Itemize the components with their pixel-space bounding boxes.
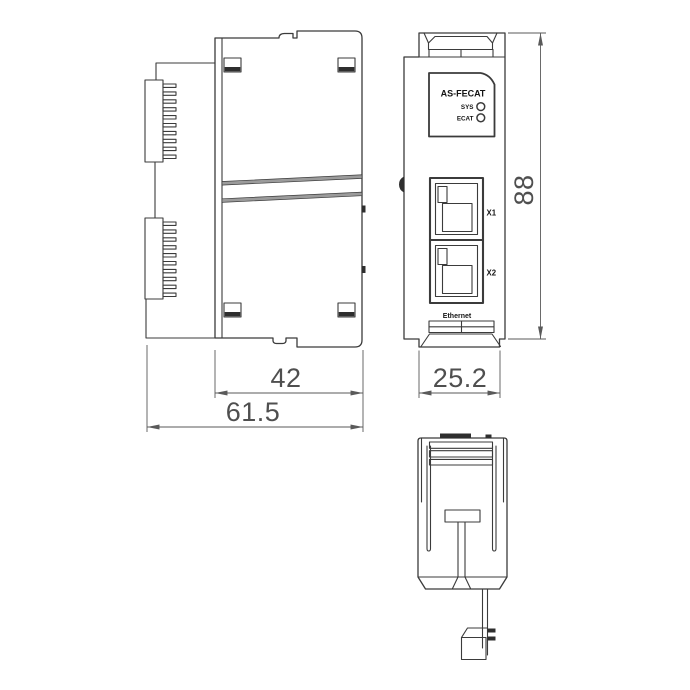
release-tab	[399, 177, 404, 193]
guide-rail-right	[493, 446, 497, 551]
connector-pins-lower	[163, 222, 176, 297]
ethernet-ports: X1 X2 Ethernet	[430, 178, 497, 320]
port-x2-label: X2	[487, 269, 497, 278]
side-view	[145, 31, 366, 347]
dim-module-height-value: 88	[509, 174, 539, 205]
bus-connector-bracket	[145, 63, 215, 338]
ethernet-port-x2	[436, 246, 478, 297]
dim-module-width-value: 25.2	[433, 363, 488, 393]
front-body-outline	[404, 33, 505, 347]
side-trim-band	[222, 175, 362, 203]
guide-rail-left	[427, 446, 431, 551]
terminal-connector-upper	[145, 80, 163, 162]
terminal-connector-lower	[145, 218, 163, 299]
dimension-module-width: 25.2	[419, 351, 500, 399]
side-face-tick-lower	[362, 266, 366, 273]
bottom-body-outline	[418, 438, 507, 589]
bottom-slots	[430, 442, 493, 465]
side-face-tick-upper	[362, 206, 366, 213]
dim-body-depth-value: 42	[270, 363, 301, 393]
din-rail-latch-bottom	[421, 321, 501, 347]
ecat-led-label: ECAT	[457, 115, 474, 122]
sys-led-label: SYS	[461, 104, 474, 111]
sys-led-indicator	[477, 103, 485, 111]
connector-pins-upper	[163, 84, 176, 159]
port-x1-label: X1	[487, 209, 497, 218]
din-rail-latch-top	[424, 33, 497, 57]
din-rail-clip	[462, 589, 496, 660]
dimension-drawing-page: AS-FECAT SYS ECAT X1 X2 Ethernet	[0, 0, 690, 690]
technical-drawing: AS-FECAT SYS ECAT X1 X2 Ethernet	[0, 0, 690, 690]
bottom-view	[418, 434, 507, 660]
ecat-led-indicator	[477, 114, 485, 122]
module-label-plate: AS-FECAT SYS ECAT	[429, 73, 495, 137]
dimension-module-height: 88	[508, 33, 546, 339]
mounting-clips	[224, 58, 355, 317]
ethernet-caption: Ethernet	[443, 313, 472, 320]
front-view: AS-FECAT SYS ECAT X1 X2 Ethernet	[399, 33, 505, 347]
ethernet-port-x1	[436, 184, 478, 235]
dimensions: 42 61.5 25.2 88	[147, 33, 546, 432]
dimension-overall-depth: 61.5	[147, 345, 363, 432]
side-body-outline	[215, 31, 362, 347]
bottom-top-pad	[440, 434, 471, 439]
dim-overall-depth-value: 61.5	[226, 397, 281, 427]
module-name-label: AS-FECAT	[441, 89, 486, 99]
